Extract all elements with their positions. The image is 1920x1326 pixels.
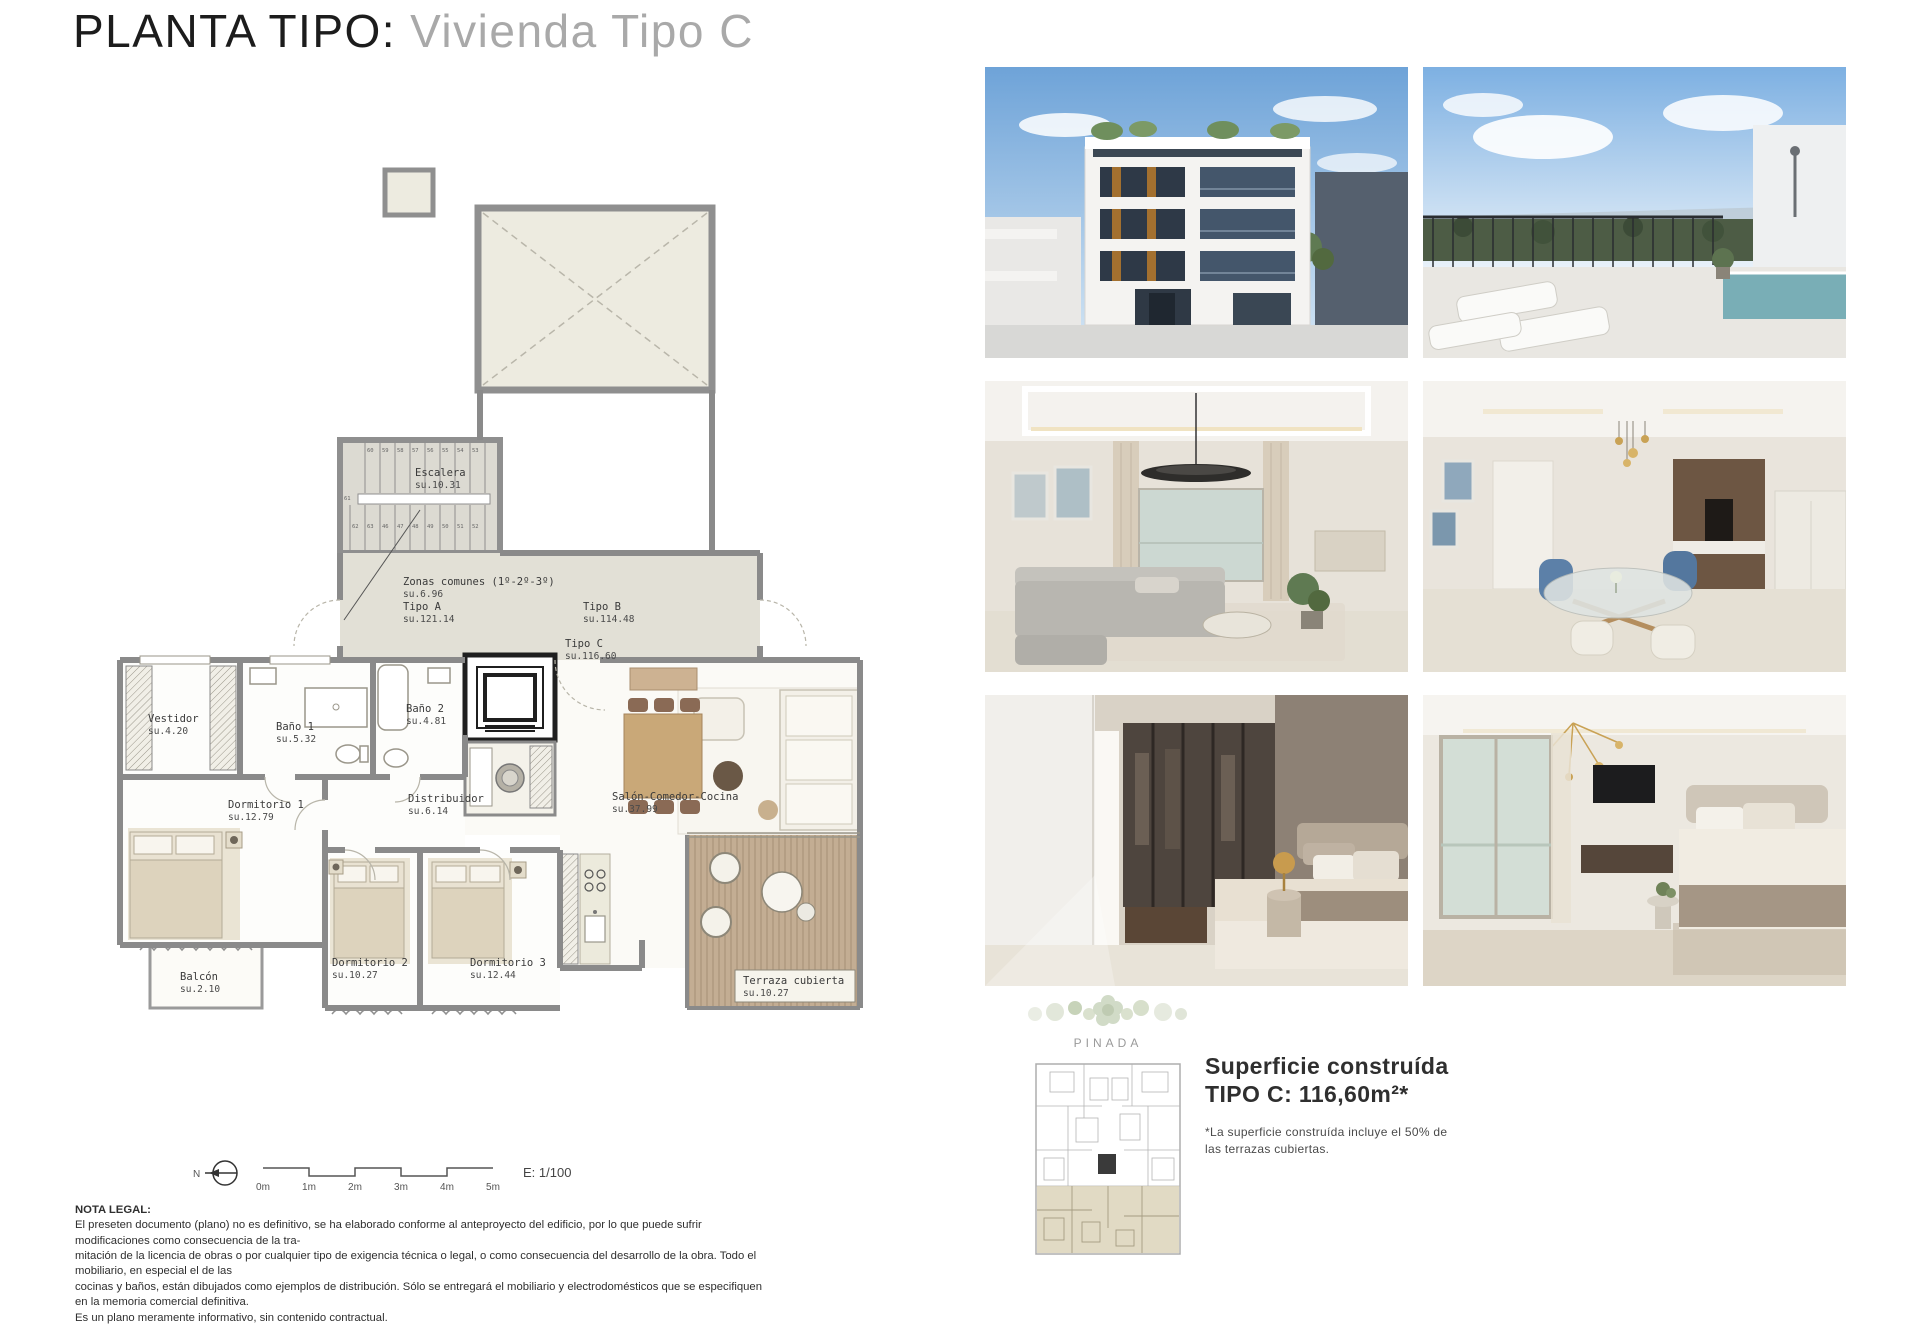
svg-text:58: 58: [397, 448, 404, 454]
svg-text:48: 48: [412, 524, 419, 530]
svg-text:56: 56: [427, 448, 434, 454]
pinada-logo-icon: [1022, 990, 1194, 1030]
room-label: Dormitorio 1: [228, 799, 304, 811]
photo-bedroom-with-view: [1423, 695, 1846, 986]
svg-text:59: 59: [382, 448, 389, 454]
elevator: [465, 655, 555, 740]
scale-ruler: [263, 1168, 493, 1176]
svg-text:0m: 0m: [256, 1182, 270, 1193]
svg-text:su.116.60: su.116.60: [565, 651, 617, 662]
svg-text:46: 46: [382, 524, 389, 530]
svg-text:55: 55: [442, 448, 449, 454]
svg-text:su.12.44: su.12.44: [470, 970, 516, 981]
svg-text:60: 60: [367, 448, 374, 454]
svg-text:3m: 3m: [394, 1182, 408, 1193]
room-label: Tipo B: [583, 601, 621, 613]
photo-dining-room: [1423, 381, 1846, 672]
surface-block: Superficie construída TIPO C: 116,60m²* …: [1205, 1052, 1495, 1159]
svg-text:su.37.99: su.37.99: [612, 804, 658, 815]
svg-text:4m: 4m: [440, 1182, 454, 1193]
brand-name: PINADA: [1022, 1036, 1194, 1050]
svg-text:su.10.31: su.10.31: [415, 480, 461, 491]
photo-grid: [985, 67, 1846, 986]
room-label: Baño 2: [406, 703, 444, 715]
page-title-sub: Vivienda Tipo C: [410, 5, 754, 57]
svg-text:62: 62: [352, 524, 359, 530]
room-label: Escalera: [415, 467, 466, 479]
svg-text:su.121.14: su.121.14: [403, 614, 455, 625]
svg-text:N: N: [193, 1169, 200, 1180]
legal-heading: NOTA LEGAL:: [75, 1203, 775, 1218]
svg-text:su.5.32: su.5.32: [276, 734, 316, 745]
legal-line: mitación de la licencia de obras o por c…: [75, 1249, 775, 1280]
legal-line: El preseten documento (plano) no es defi…: [75, 1218, 775, 1249]
svg-text:su.4.81: su.4.81: [406, 716, 446, 727]
photo-living-room: [985, 381, 1408, 672]
svg-text:su.4.20: su.4.20: [148, 726, 188, 737]
svg-text:su.6.14: su.6.14: [408, 806, 448, 817]
room-label: Baño 1: [276, 721, 314, 733]
svg-text:su.6.96: su.6.96: [403, 589, 443, 600]
floorplan-svg: 60 59 58 57 56 55 54 53 62 63 46 47 48 4…: [80, 160, 880, 1030]
surface-note: *La superficie construída incluye el 50%…: [1205, 1124, 1495, 1159]
surface-title-line1: Superficie construída: [1205, 1052, 1495, 1080]
photo-rooftop-terrace: [1423, 67, 1846, 358]
room-label: Tipo C: [565, 638, 603, 650]
north-arrow-icon: N: [193, 1161, 237, 1185]
brand-block: PINADA: [1022, 990, 1194, 1050]
scale-bar: N 0m 1m 2m 3m 4m 5m E: 1/100: [185, 1148, 605, 1198]
room-label: Vestidor: [148, 713, 199, 725]
svg-text:49: 49: [427, 524, 434, 530]
page-title: PLANTA TIPO:Vivienda Tipo C: [73, 4, 754, 58]
legal-note: NOTA LEGAL: El preseten documento (plano…: [75, 1203, 775, 1326]
room-label: Dormitorio 2: [332, 957, 408, 969]
scale-ruler-labels: 0m 1m 2m 3m 4m 5m: [256, 1182, 500, 1193]
svg-text:53: 53: [472, 448, 479, 454]
kitchen-strip: [562, 854, 610, 964]
photo-building-facade: [985, 67, 1408, 358]
svg-text:51: 51: [457, 524, 464, 530]
room-label: Distribuidor: [408, 793, 484, 805]
svg-text:63: 63: [367, 524, 374, 530]
svg-text:47: 47: [397, 524, 404, 530]
svg-text:1m: 1m: [302, 1182, 316, 1193]
room-label: Salón-Comedor-Cocina: [612, 791, 738, 803]
svg-text:61: 61: [344, 496, 351, 502]
svg-text:54: 54: [457, 448, 464, 454]
svg-text:su.12.79: su.12.79: [228, 812, 274, 823]
room-label: Dormitorio 3: [470, 957, 546, 969]
svg-text:5m: 5m: [486, 1182, 500, 1193]
svg-text:su.114.48: su.114.48: [583, 614, 635, 625]
svg-text:57: 57: [412, 448, 419, 454]
page-title-main: PLANTA TIPO:: [73, 5, 396, 57]
scale-ratio: E: 1/100: [523, 1165, 571, 1180]
floorplan: 60 59 58 57 56 55 54 53 62 63 46 47 48 4…: [80, 160, 880, 1030]
legal-line: cocinas y baños, están dibujados como ej…: [75, 1280, 775, 1311]
svg-text:su.2.10: su.2.10: [180, 984, 220, 995]
room-label: Tipo A: [403, 601, 442, 613]
svg-text:su.10.27: su.10.27: [332, 970, 378, 981]
svg-text:52: 52: [472, 524, 479, 530]
svg-text:50: 50: [442, 524, 449, 530]
surface-title-line2: TIPO C: 116,60m²*: [1205, 1080, 1495, 1108]
svg-text:su.10.27: su.10.27: [743, 988, 789, 999]
svg-text:2m: 2m: [348, 1182, 362, 1193]
legal-line: Es un plano meramente informativo, sin c…: [75, 1311, 775, 1326]
photo-master-bedroom: [985, 695, 1408, 986]
keyplan: [1032, 1058, 1184, 1258]
room-label: Terraza cubierta: [743, 975, 844, 987]
room-label: Balcón: [180, 971, 218, 983]
room-label: Zonas comunes (1º-2º-3º): [403, 576, 555, 588]
